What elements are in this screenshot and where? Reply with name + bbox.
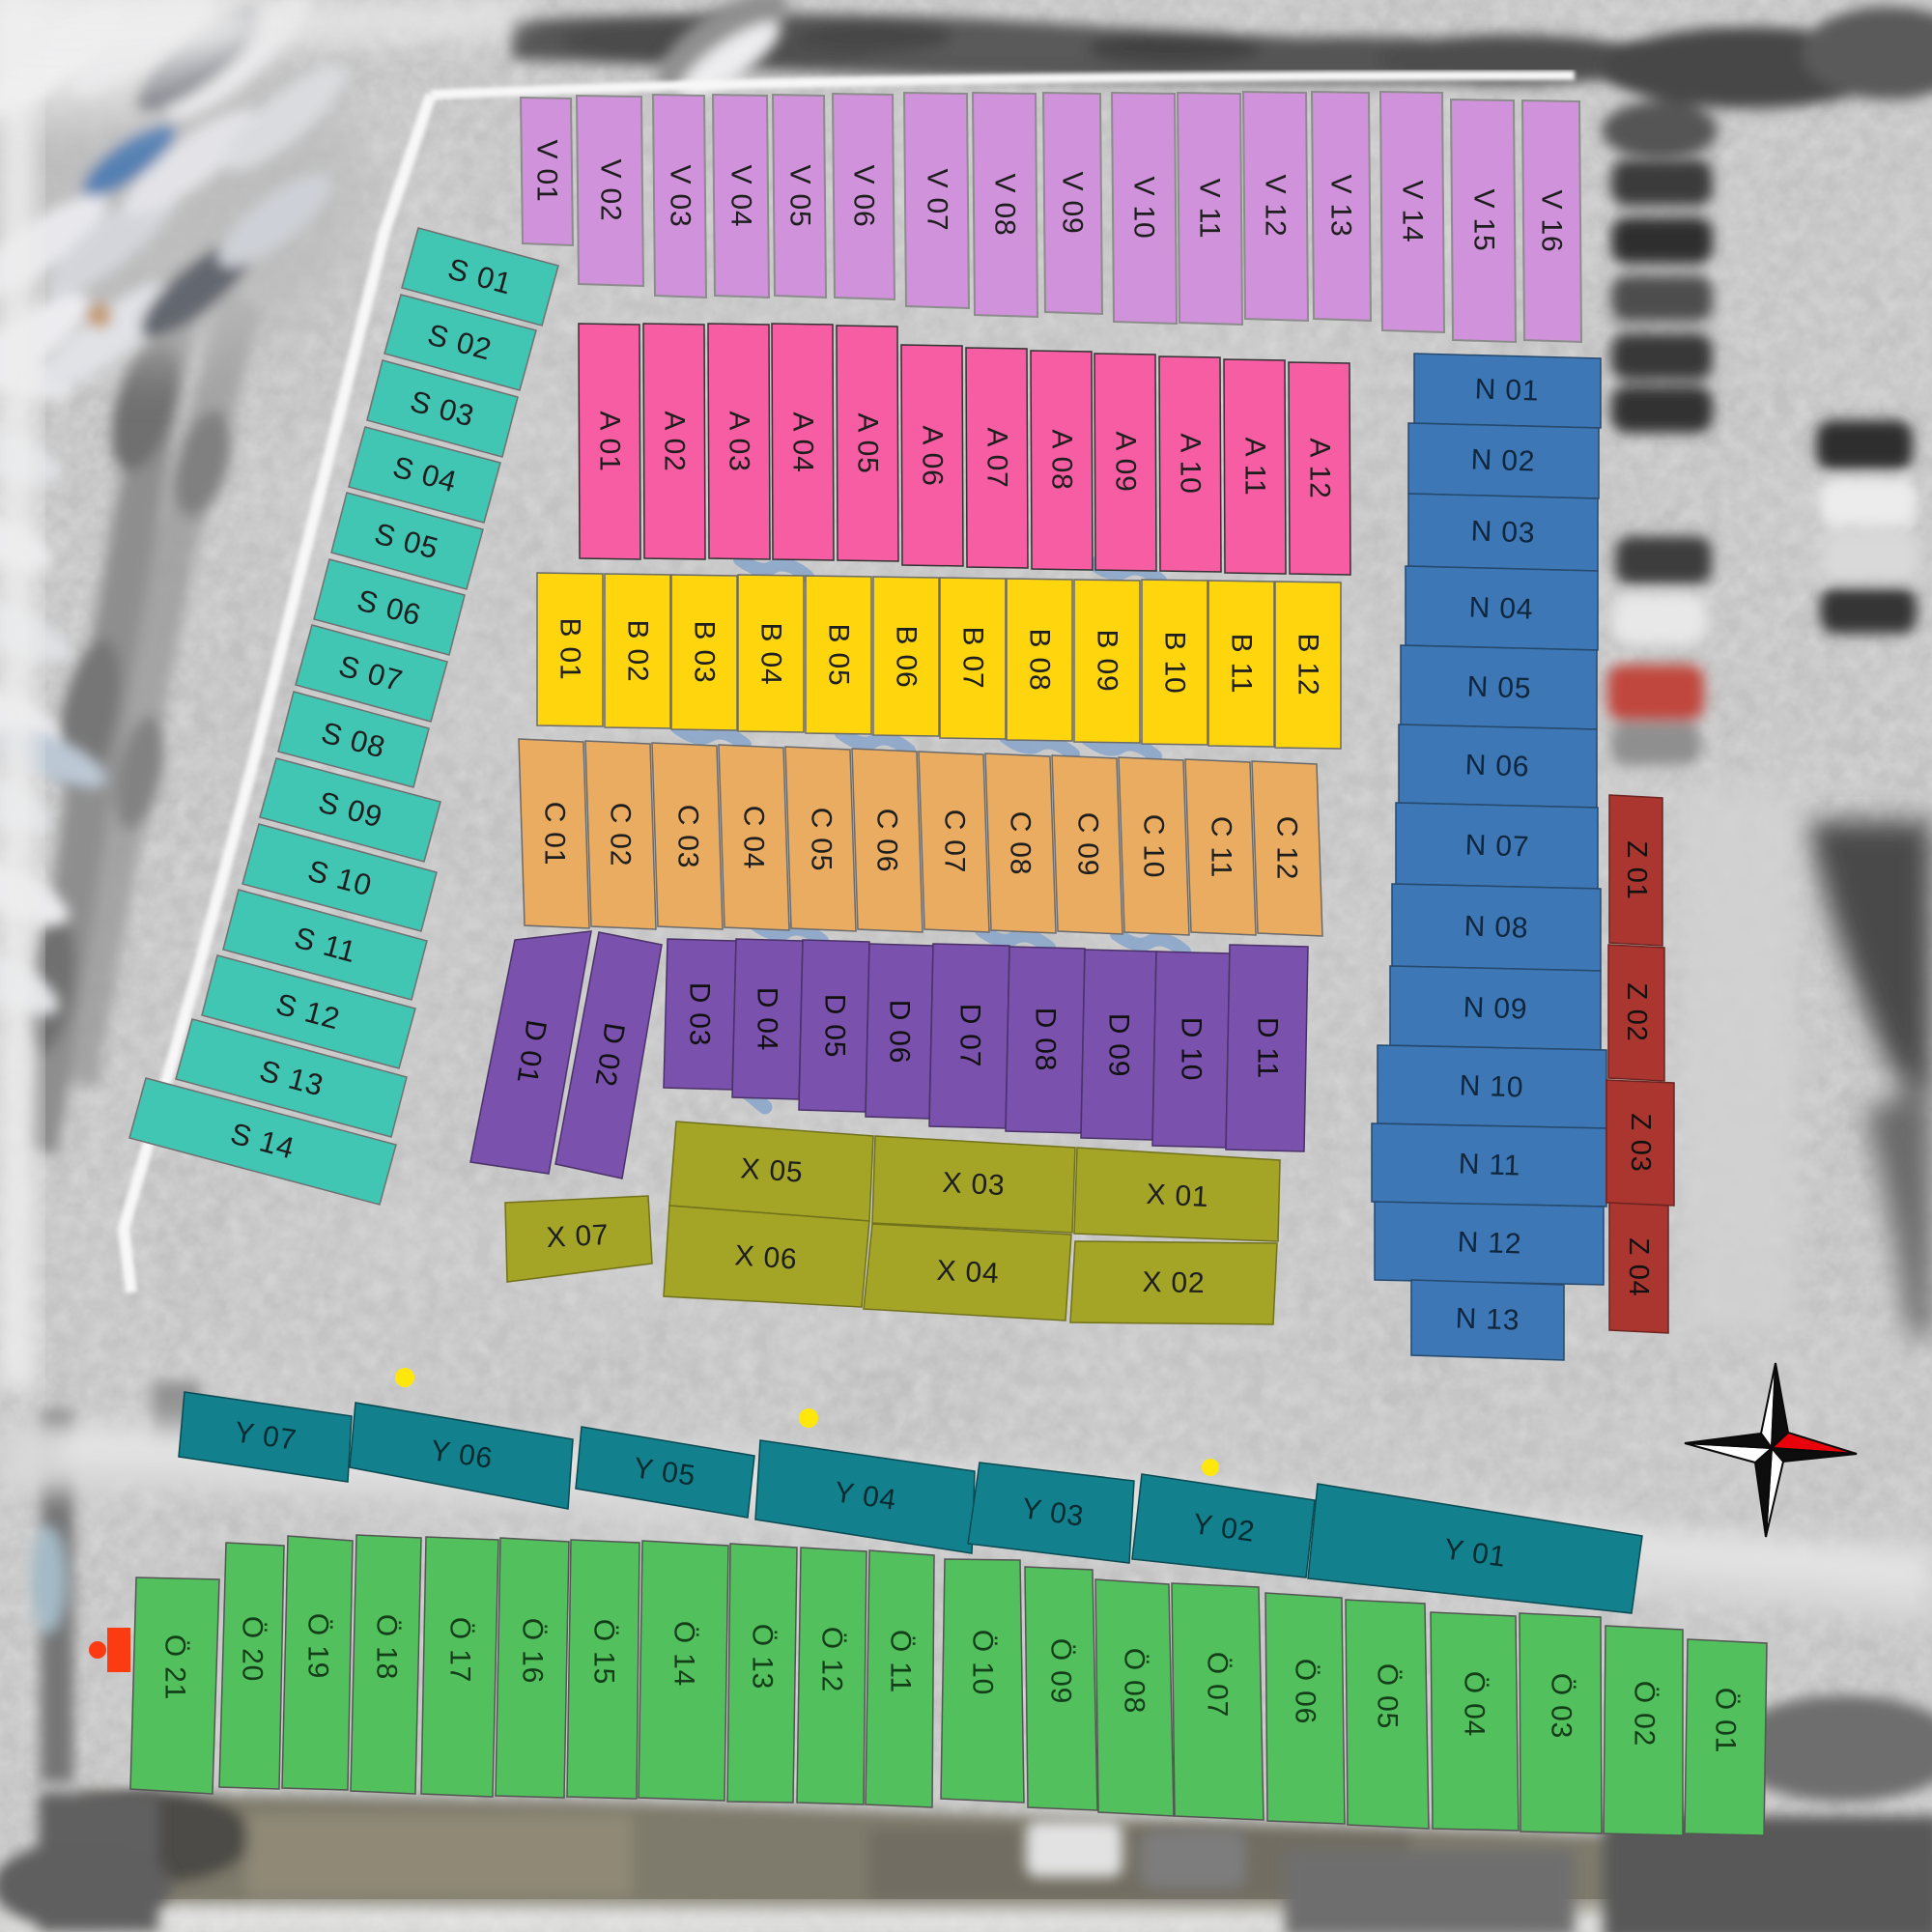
svg-text:N 09: N 09: [1463, 991, 1528, 1025]
svg-text:Ö 13: Ö 13: [747, 1624, 779, 1690]
svg-text:V 06: V 06: [848, 165, 880, 228]
svg-text:Ö 21: Ö 21: [159, 1634, 191, 1700]
svg-text:C 10: C 10: [1138, 814, 1170, 879]
svg-text:X 02: X 02: [1142, 1266, 1205, 1299]
svg-text:B 02: B 02: [622, 620, 654, 683]
svg-text:Ö 19: Ö 19: [302, 1613, 334, 1679]
svg-text:X 01: X 01: [1146, 1179, 1210, 1213]
svg-text:B 10: B 10: [1159, 632, 1191, 695]
svg-text:A 04: A 04: [787, 412, 819, 472]
svg-text:A 10: A 10: [1175, 433, 1207, 494]
svg-text:D 09: D 09: [1103, 1013, 1135, 1078]
svg-text:B 06: B 06: [891, 626, 923, 689]
svg-text:A 11: A 11: [1239, 437, 1271, 496]
svg-text:A 06: A 06: [917, 425, 949, 486]
svg-text:Ö 04: Ö 04: [1459, 1671, 1491, 1737]
svg-text:Ö 16: Ö 16: [517, 1618, 549, 1684]
svg-text:V 04: V 04: [725, 165, 757, 228]
svg-text:Ö 18: Ö 18: [371, 1614, 403, 1680]
svg-text:X 07: X 07: [546, 1219, 611, 1254]
svg-text:Ö 03: Ö 03: [1546, 1673, 1577, 1739]
svg-text:V 08: V 08: [989, 174, 1021, 237]
svg-text:B 12: B 12: [1293, 634, 1324, 696]
svg-text:A 02: A 02: [659, 411, 691, 471]
svg-text:Ö 20: Ö 20: [237, 1616, 269, 1682]
svg-text:Z 04: Z 04: [1623, 1237, 1654, 1296]
svg-text:N 10: N 10: [1459, 1069, 1524, 1103]
svg-text:B 03: B 03: [689, 621, 721, 684]
svg-text:A 01: A 01: [594, 411, 626, 471]
svg-text:C 09: C 09: [1072, 812, 1104, 877]
svg-text:N 02: N 02: [1470, 443, 1536, 477]
svg-text:Ö 14: Ö 14: [668, 1621, 700, 1687]
svg-text:A 09: A 09: [1110, 431, 1142, 492]
svg-text:V 02: V 02: [595, 159, 627, 222]
svg-text:C 12: C 12: [1271, 816, 1303, 881]
svg-text:D 10: D 10: [1176, 1017, 1207, 1082]
svg-text:V 10: V 10: [1128, 177, 1160, 240]
svg-text:C 11: C 11: [1206, 816, 1237, 878]
svg-text:X 03: X 03: [942, 1167, 1007, 1202]
svg-text:Ö 11: Ö 11: [885, 1630, 917, 1693]
svg-text:D 11: D 11: [1252, 1017, 1284, 1079]
svg-text:V 15: V 15: [1468, 189, 1500, 252]
svg-text:N 11: N 11: [1458, 1148, 1520, 1181]
svg-text:A 03: A 03: [724, 411, 755, 471]
svg-text:Ö 06: Ö 06: [1290, 1659, 1321, 1724]
svg-text:V 13: V 13: [1325, 175, 1357, 238]
svg-text:C 02: C 02: [605, 803, 637, 867]
svg-text:V 01: V 01: [531, 140, 563, 203]
svg-text:Ö 15: Ö 15: [588, 1619, 620, 1685]
svg-text:Ö 01: Ö 01: [1710, 1688, 1742, 1753]
svg-text:V 14: V 14: [1397, 181, 1429, 243]
svg-text:V 03: V 03: [665, 165, 696, 228]
svg-text:N 01: N 01: [1474, 373, 1540, 407]
svg-text:X 06: X 06: [733, 1239, 798, 1275]
svg-text:A 12: A 12: [1304, 438, 1336, 498]
svg-text:V 09: V 09: [1057, 172, 1089, 235]
svg-text:X 05: X 05: [739, 1152, 804, 1188]
svg-text:C 07: C 07: [939, 810, 971, 874]
svg-text:B 11: B 11: [1226, 634, 1258, 695]
svg-text:Ö 10: Ö 10: [967, 1630, 999, 1695]
svg-text:A 07: A 07: [981, 427, 1013, 488]
svg-text:D 06: D 06: [884, 1000, 916, 1065]
svg-text:A 08: A 08: [1046, 429, 1078, 490]
svg-text:N 05: N 05: [1466, 670, 1532, 704]
svg-text:V 12: V 12: [1260, 175, 1292, 238]
svg-text:V 07: V 07: [922, 169, 953, 232]
svg-text:N 12: N 12: [1457, 1226, 1522, 1260]
svg-text:V 05: V 05: [784, 165, 816, 228]
svg-text:Z 01: Z 01: [1621, 840, 1652, 899]
svg-text:Ö 12: Ö 12: [816, 1627, 848, 1692]
svg-text:N 07: N 07: [1464, 829, 1530, 863]
svg-text:D 08: D 08: [1030, 1008, 1062, 1072]
svg-text:Ö 17: Ö 17: [444, 1617, 476, 1683]
svg-text:B 07: B 07: [957, 627, 989, 690]
svg-text:D 03: D 03: [684, 982, 716, 1047]
svg-text:N 06: N 06: [1464, 749, 1530, 782]
svg-text:D 04: D 04: [752, 987, 783, 1052]
svg-text:B 04: B 04: [755, 623, 787, 686]
svg-text:C 05: C 05: [806, 808, 838, 872]
svg-text:Z 02: Z 02: [1621, 982, 1652, 1041]
svg-text:C 08: C 08: [1005, 811, 1037, 876]
svg-text:Ö 07: Ö 07: [1202, 1652, 1234, 1718]
svg-text:N 03: N 03: [1470, 515, 1536, 549]
svg-text:Ö 05: Ö 05: [1372, 1663, 1404, 1729]
svg-text:Ö 02: Ö 02: [1629, 1681, 1661, 1747]
svg-text:B 05: B 05: [823, 624, 855, 687]
svg-text:C 04: C 04: [738, 806, 770, 870]
svg-text:N 13: N 13: [1455, 1302, 1520, 1336]
svg-text:C 03: C 03: [672, 805, 704, 869]
svg-text:N 08: N 08: [1463, 910, 1529, 944]
svg-text:B 09: B 09: [1092, 630, 1123, 693]
svg-text:Ö 09: Ö 09: [1045, 1638, 1077, 1704]
svg-text:B 08: B 08: [1024, 629, 1056, 692]
svg-text:C 06: C 06: [871, 809, 903, 873]
svg-text:A 05: A 05: [852, 412, 884, 473]
svg-text:X 04: X 04: [936, 1255, 1001, 1290]
svg-text:B 01: B 01: [554, 618, 586, 681]
svg-text:V 11: V 11: [1194, 179, 1226, 240]
svg-text:V 16: V 16: [1536, 190, 1568, 253]
svg-text:D 05: D 05: [819, 994, 851, 1059]
svg-text:N 04: N 04: [1468, 591, 1534, 625]
svg-text:Ö 08: Ö 08: [1119, 1648, 1151, 1714]
svg-text:C 01: C 01: [539, 802, 571, 867]
svg-text:D 07: D 07: [954, 1004, 986, 1068]
svg-text:Z 03: Z 03: [1625, 1113, 1656, 1172]
